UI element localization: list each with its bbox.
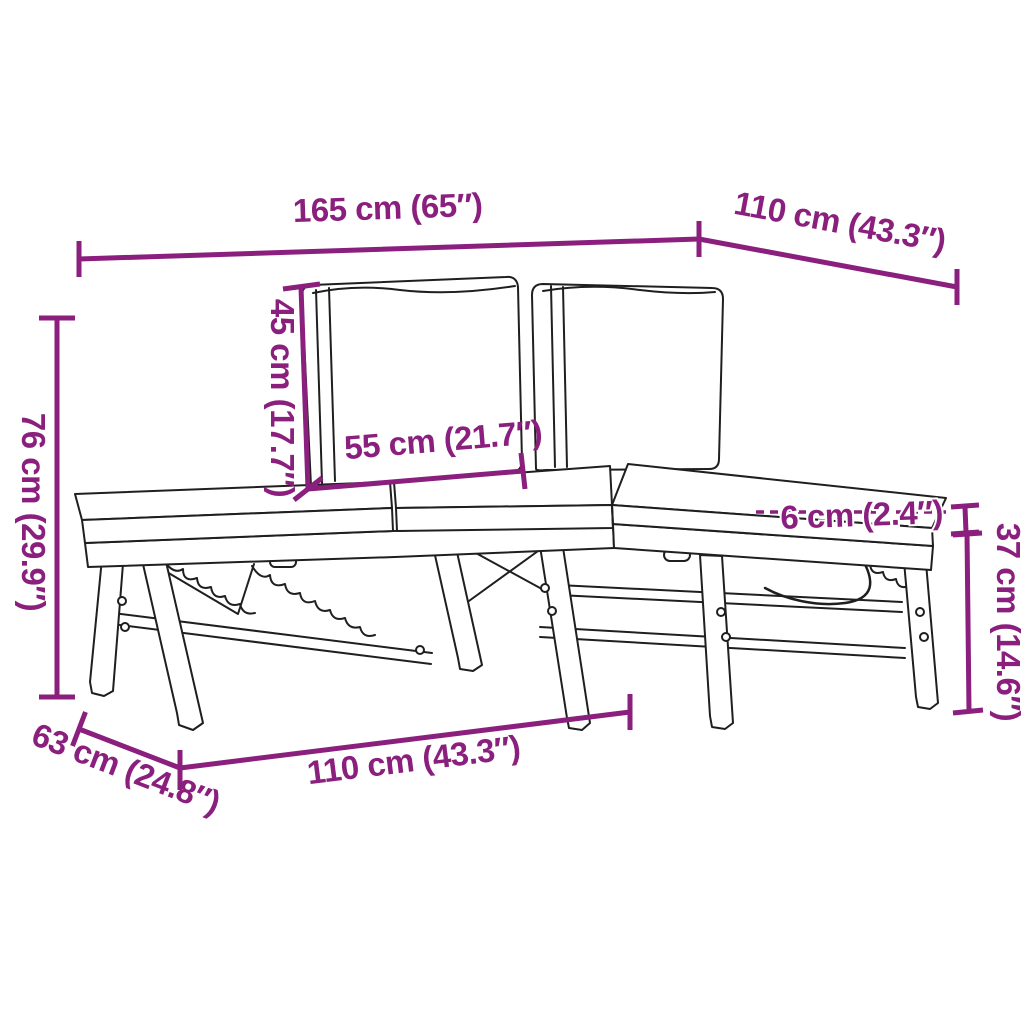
dim-extension-length: 110 cm (43.3″) xyxy=(699,184,957,305)
dim-seat-height-label: 37 cm (14.6″) xyxy=(990,523,1024,721)
left-rear-leg xyxy=(90,548,124,696)
dim-overall-height-label: 76 cm (29.9″) xyxy=(15,413,52,611)
extension-near-leg xyxy=(700,555,733,729)
bolt-heads xyxy=(118,584,928,654)
dim-overall-width-line xyxy=(79,221,699,277)
dim-back-cushion-height-label: 45 cm (17.7″) xyxy=(264,299,301,497)
left-front-leg xyxy=(140,551,203,730)
dim-seat-height-line xyxy=(953,533,983,713)
dim-extension-length-label: 110 cm (43.3″) xyxy=(731,184,948,259)
extension-stretcher-upper xyxy=(558,585,902,612)
left-support-bar xyxy=(104,612,432,664)
seat-cushion-middle-front xyxy=(396,505,613,531)
left-ratchet-teeth-outer xyxy=(252,566,375,636)
dim-overall-width-label: 165 cm (65″) xyxy=(292,186,483,229)
left-ratchet-teeth-inner xyxy=(164,561,255,614)
dim-overall-height: 76 cm (29.9″) xyxy=(15,318,75,697)
back-cushion-right xyxy=(532,284,723,470)
dim-seat-height: 37 cm (14.6″) xyxy=(953,523,1024,721)
extension-far-leg xyxy=(903,550,938,709)
dim-seat-section-length: 110 cm (43.3″) xyxy=(180,694,630,791)
dim-overall-width: 165 cm (65″) xyxy=(79,186,699,277)
corner-seam xyxy=(612,505,613,528)
dim-cushion-thickness-label: 6 cm (2.4″) xyxy=(780,493,944,536)
dim-cushion-thickness-bracket xyxy=(951,505,979,534)
product-dimension-diagram: 165 cm (65″) 110 cm (43.3″) 76 cm (29.9″… xyxy=(0,0,1024,1024)
bench-dimension-drawing: 165 cm (65″) 110 cm (43.3″) 76 cm (29.9″… xyxy=(0,0,1024,1024)
